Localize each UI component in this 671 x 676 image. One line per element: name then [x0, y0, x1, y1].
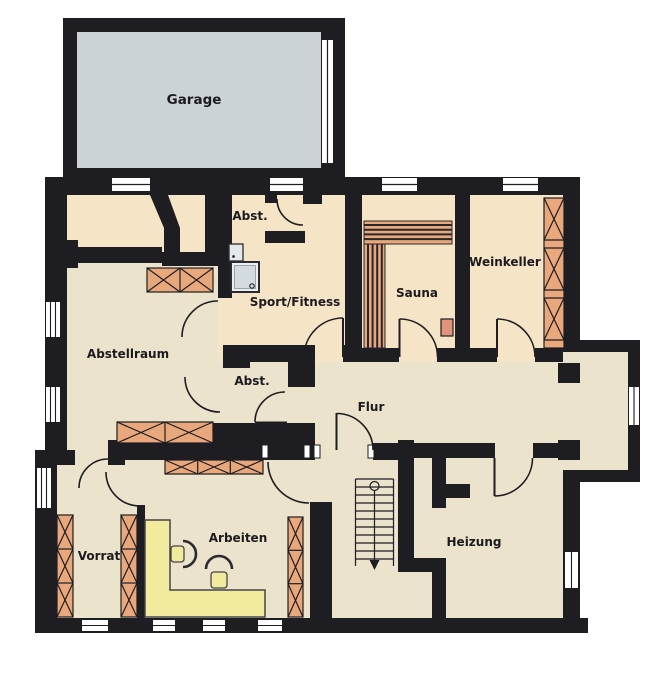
window-top-3 [382, 178, 417, 191]
sauna-heater [441, 319, 453, 336]
wall-stairhall-heizung [398, 440, 414, 570]
label-sauna: Sauna [396, 286, 438, 300]
label-vorrat: Vorrat [78, 549, 121, 563]
wall-abst-mid-right [288, 353, 315, 387]
window-bottom-3 [203, 620, 225, 631]
wine-rack [544, 198, 564, 348]
wall-stub-abst-top-door [265, 195, 277, 203]
wall-heizung-alcove-h [446, 484, 470, 498]
cabinet-abstellraum [117, 422, 213, 443]
floor-plan-drawing: Garage Abst. Sport/Fitness Sauna Weinkel… [0, 0, 671, 676]
window-left-3 [37, 468, 51, 508]
wall-heizung-alcove-v [432, 453, 446, 508]
top-rooms-floor [218, 195, 563, 362]
wall-stub-abst-top-right [303, 195, 322, 204]
wall-bottom [35, 618, 588, 633]
label-abst-mid: Abst. [234, 374, 269, 388]
label-arbeiten: Arbeiten [209, 531, 267, 545]
wall-arbeiten-stairhall [310, 502, 332, 618]
wall-vestibule-stub [108, 440, 125, 465]
wall-flur-bottom-right [373, 443, 398, 460]
wall-heizung-top-right [533, 443, 563, 458]
wall-flur-top-2 [343, 345, 362, 362]
window-bottom-1 [82, 620, 108, 631]
wall-flur-bottom-left [213, 443, 262, 460]
window-top-1 [112, 178, 150, 191]
wall-sauna-bottom-1 [362, 348, 399, 362]
wall-abst-top-bottom [265, 231, 305, 243]
floor-plan-page: Garage Abst. Sport/Fitness Sauna Weinkel… [0, 0, 671, 676]
rack-vorrat-right [121, 515, 137, 617]
wall-weinkeller-bottom-1 [470, 348, 497, 362]
wall-right-lower [563, 470, 580, 633]
wall-sauna-weinkeller [455, 195, 470, 362]
door-threshold-mark-1 [262, 445, 268, 458]
corner-room-floor [67, 195, 218, 252]
wall-sport-sauna [345, 195, 362, 362]
label-abstellraum: Abstellraum [87, 347, 169, 361]
wall-right-upper [563, 177, 580, 352]
label-flur: Flur [358, 400, 385, 414]
wall-corner-room-bottom [67, 247, 162, 263]
rack-vorrat-left [57, 515, 73, 617]
door-threshold-mark-3 [314, 445, 320, 458]
wall-heizung-nook-right [432, 572, 446, 618]
wall-heizung-top-left [414, 443, 495, 458]
wall-sauna-bottom-2 [437, 348, 455, 362]
window-right-heizung [565, 552, 578, 588]
window-left-2 [46, 387, 60, 422]
wall-abst-mid-block [223, 345, 250, 368]
label-sport-fitness: Sport/Fitness [250, 295, 341, 309]
bay-stub-upper [558, 363, 580, 383]
shower [231, 262, 259, 292]
bay-wall-bottom [563, 470, 640, 482]
window-bottom-4 [258, 620, 282, 631]
window-top-4 [503, 178, 538, 191]
sink [229, 244, 243, 261]
window-bottom-2 [153, 620, 175, 631]
bay-wall-top [563, 340, 640, 352]
window-bay-right [629, 387, 639, 425]
wall-vorrat-arbeiten [137, 505, 145, 618]
label-abst-top: Abst. [232, 209, 267, 223]
door-threshold-mark-2 [304, 445, 310, 458]
cabinet-corner-room [147, 268, 213, 292]
wall-vorrat-top [57, 450, 75, 465]
window-left-1 [46, 302, 60, 337]
label-weinkeller: Weinkeller [469, 255, 541, 269]
cabinet-arbeiten-top [165, 460, 263, 474]
rack-arbeiten-right [288, 517, 303, 617]
window-top-2 [270, 178, 303, 191]
garage-door-opening [322, 40, 333, 163]
wall-weinkeller-bottom-2 [535, 348, 563, 362]
label-heizung: Heizung [447, 535, 502, 549]
wall-heizung-nook-top [398, 558, 446, 572]
label-garage: Garage [167, 92, 222, 108]
